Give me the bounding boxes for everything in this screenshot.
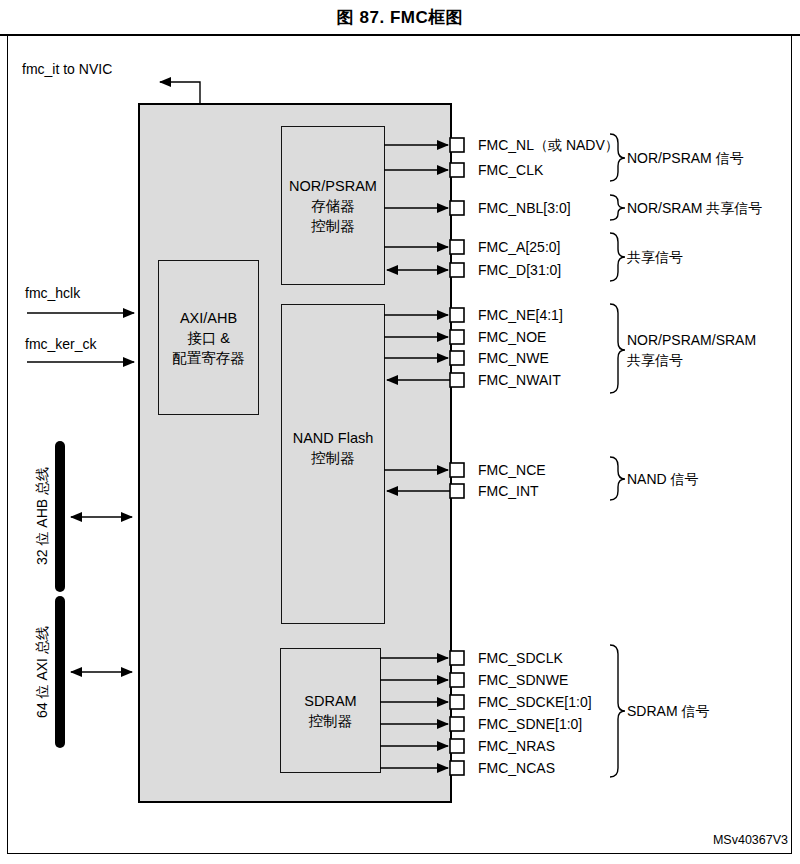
nor-psram-controller-label: NOR/PSRAM 存储器 控制器 xyxy=(289,176,377,236)
fmc-main-block: AXI/AHB 接口 & 配置寄存器 NOR/PSRAM 存储器 控制器 NAN… xyxy=(138,103,452,803)
signal-label: FMC_NCAS xyxy=(478,758,555,778)
signal-label: FMC_CLK xyxy=(478,160,543,180)
signal-label: FMC_D[31:0] xyxy=(478,260,561,280)
signal-label: FMC_INT xyxy=(478,481,539,501)
signal-label: FMC_NL（或 NADV） xyxy=(478,135,619,155)
nand-controller-block: NAND Flash 控制器 xyxy=(281,304,385,624)
bus-label-axi: 64 位 AXI 总线 xyxy=(32,592,52,752)
axi-ahb-interface-block: AXI/AHB 接口 & 配置寄存器 xyxy=(158,260,259,415)
figure: 图 87. FMC框图 fmc_it to NVIC fmc_hclk fmc_… xyxy=(0,0,800,864)
nand-controller-label: NAND Flash 控制器 xyxy=(293,428,374,468)
signal-label: FMC_SDNWE xyxy=(478,670,568,690)
signal-label: FMC_NWAIT xyxy=(478,370,561,390)
signal-group-label: SDRAM 信号 xyxy=(627,701,709,721)
signal-label: FMC_NBL[3:0] xyxy=(478,198,571,218)
signal-label: FMC_NWE xyxy=(478,348,549,368)
clock-label-fmc-ker-ck: fmc_ker_ck xyxy=(25,334,97,354)
signal-group-label: NOR/PSRAM 信号 xyxy=(627,148,744,168)
signal-label: FMC_NRAS xyxy=(478,736,555,756)
signal-group-label: NAND 信号 xyxy=(627,469,699,489)
figure-code: MSv40367V3 xyxy=(560,833,788,847)
axi-ahb-interface-label: AXI/AHB 接口 & 配置寄存器 xyxy=(172,308,245,368)
signal-label: FMC_NOE xyxy=(478,327,546,347)
interrupt-label: fmc_it to NVIC xyxy=(22,59,112,79)
signal-label: FMC_A[25:0] xyxy=(478,237,560,257)
sdram-controller-label: SDRAM 控制器 xyxy=(304,691,356,731)
bus-label-ahb: 32 位 AHB 总线 xyxy=(32,436,52,596)
signal-group-label: NOR/PSRAM/SRAM 共享信号 xyxy=(627,330,756,370)
signal-label: FMC_NCE xyxy=(478,460,546,480)
signal-label: FMC_SDCKE[1:0] xyxy=(478,692,592,712)
clock-label-fmc-hclk: fmc_hclk xyxy=(25,283,80,303)
signal-label: FMC_SDCLK xyxy=(478,648,563,668)
signal-label: FMC_SDNE[1:0] xyxy=(478,714,582,734)
signal-group-label: NOR/SRAM 共享信号 xyxy=(627,198,762,218)
sdram-controller-block: SDRAM 控制器 xyxy=(280,648,381,773)
figure-title: 图 87. FMC框图 xyxy=(0,6,800,29)
signal-label: FMC_NE[4:1] xyxy=(478,305,563,325)
signal-group-label: 共享信号 xyxy=(627,247,683,267)
nor-psram-controller-block: NOR/PSRAM 存储器 控制器 xyxy=(281,126,385,285)
